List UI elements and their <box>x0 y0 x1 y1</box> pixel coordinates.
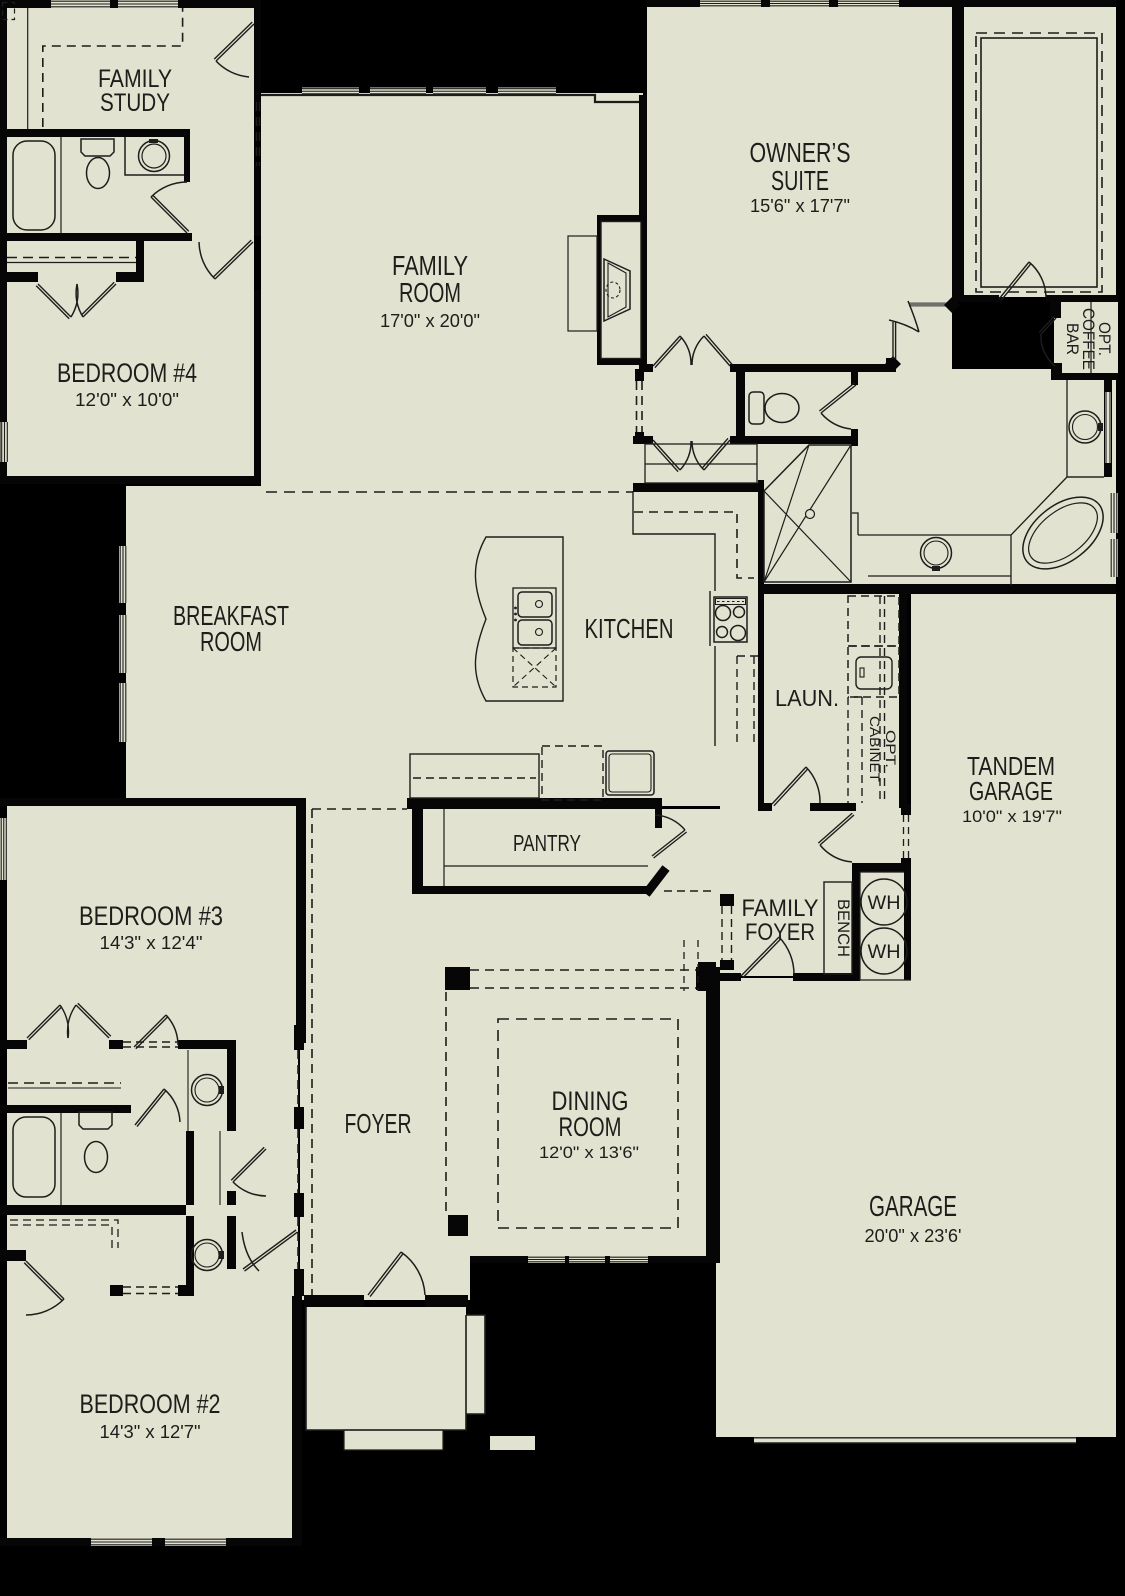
svg-text:KITCHEN: KITCHEN <box>585 613 674 644</box>
svg-text:17'0" x 20'0": 17'0" x 20'0" <box>380 311 480 331</box>
svg-text:SUITE: SUITE <box>771 165 829 196</box>
svg-text:WH: WH <box>868 893 901 914</box>
svg-text:BAR: BAR <box>1063 323 1082 355</box>
svg-text:12'0" x 13'6": 12'0" x 13'6" <box>539 1143 639 1162</box>
svg-text:BEDROOM #3: BEDROOM #3 <box>79 901 223 931</box>
svg-text:OPT.: OPT. <box>883 730 899 768</box>
svg-text:ROOM: ROOM <box>200 626 262 657</box>
svg-text:14'3" x 12'4": 14'3" x 12'4" <box>100 933 203 953</box>
svg-text:LAUN.: LAUN. <box>775 685 839 711</box>
svg-text:OPT.: OPT. <box>1095 322 1114 356</box>
svg-text:10'0" x 19'7": 10'0" x 19'7" <box>962 807 1062 826</box>
svg-text:OWNER’S: OWNER’S <box>750 137 851 168</box>
svg-text:WH: WH <box>868 942 901 963</box>
svg-text:CABINET: CABINET <box>867 716 883 782</box>
svg-text:ROOM: ROOM <box>399 277 461 308</box>
svg-text:12'0" x 10'0": 12'0" x 10'0" <box>75 390 179 410</box>
svg-text:STUDY: STUDY <box>100 89 170 117</box>
svg-text:14'3" x 12'7": 14'3" x 12'7" <box>100 1422 201 1442</box>
svg-text:PANTRY: PANTRY <box>513 830 581 856</box>
svg-text:GARAGE: GARAGE <box>969 776 1053 806</box>
svg-text:GARAGE: GARAGE <box>869 1191 957 1223</box>
svg-text:BEDROOM #4: BEDROOM #4 <box>57 358 197 388</box>
svg-text:BEDROOM #2: BEDROOM #2 <box>80 1389 221 1419</box>
svg-text:FOYER: FOYER <box>345 1108 412 1139</box>
svg-text:20'0" x 23'6': 20'0" x 23'6' <box>865 1226 962 1246</box>
svg-text:ROOM: ROOM <box>559 1112 622 1142</box>
svg-text:FAMILY: FAMILY <box>742 895 819 922</box>
svg-text:FOYER: FOYER <box>745 919 815 946</box>
svg-text:15'6" x 17'7": 15'6" x 17'7" <box>750 196 850 216</box>
svg-text:BENCH: BENCH <box>834 899 853 957</box>
